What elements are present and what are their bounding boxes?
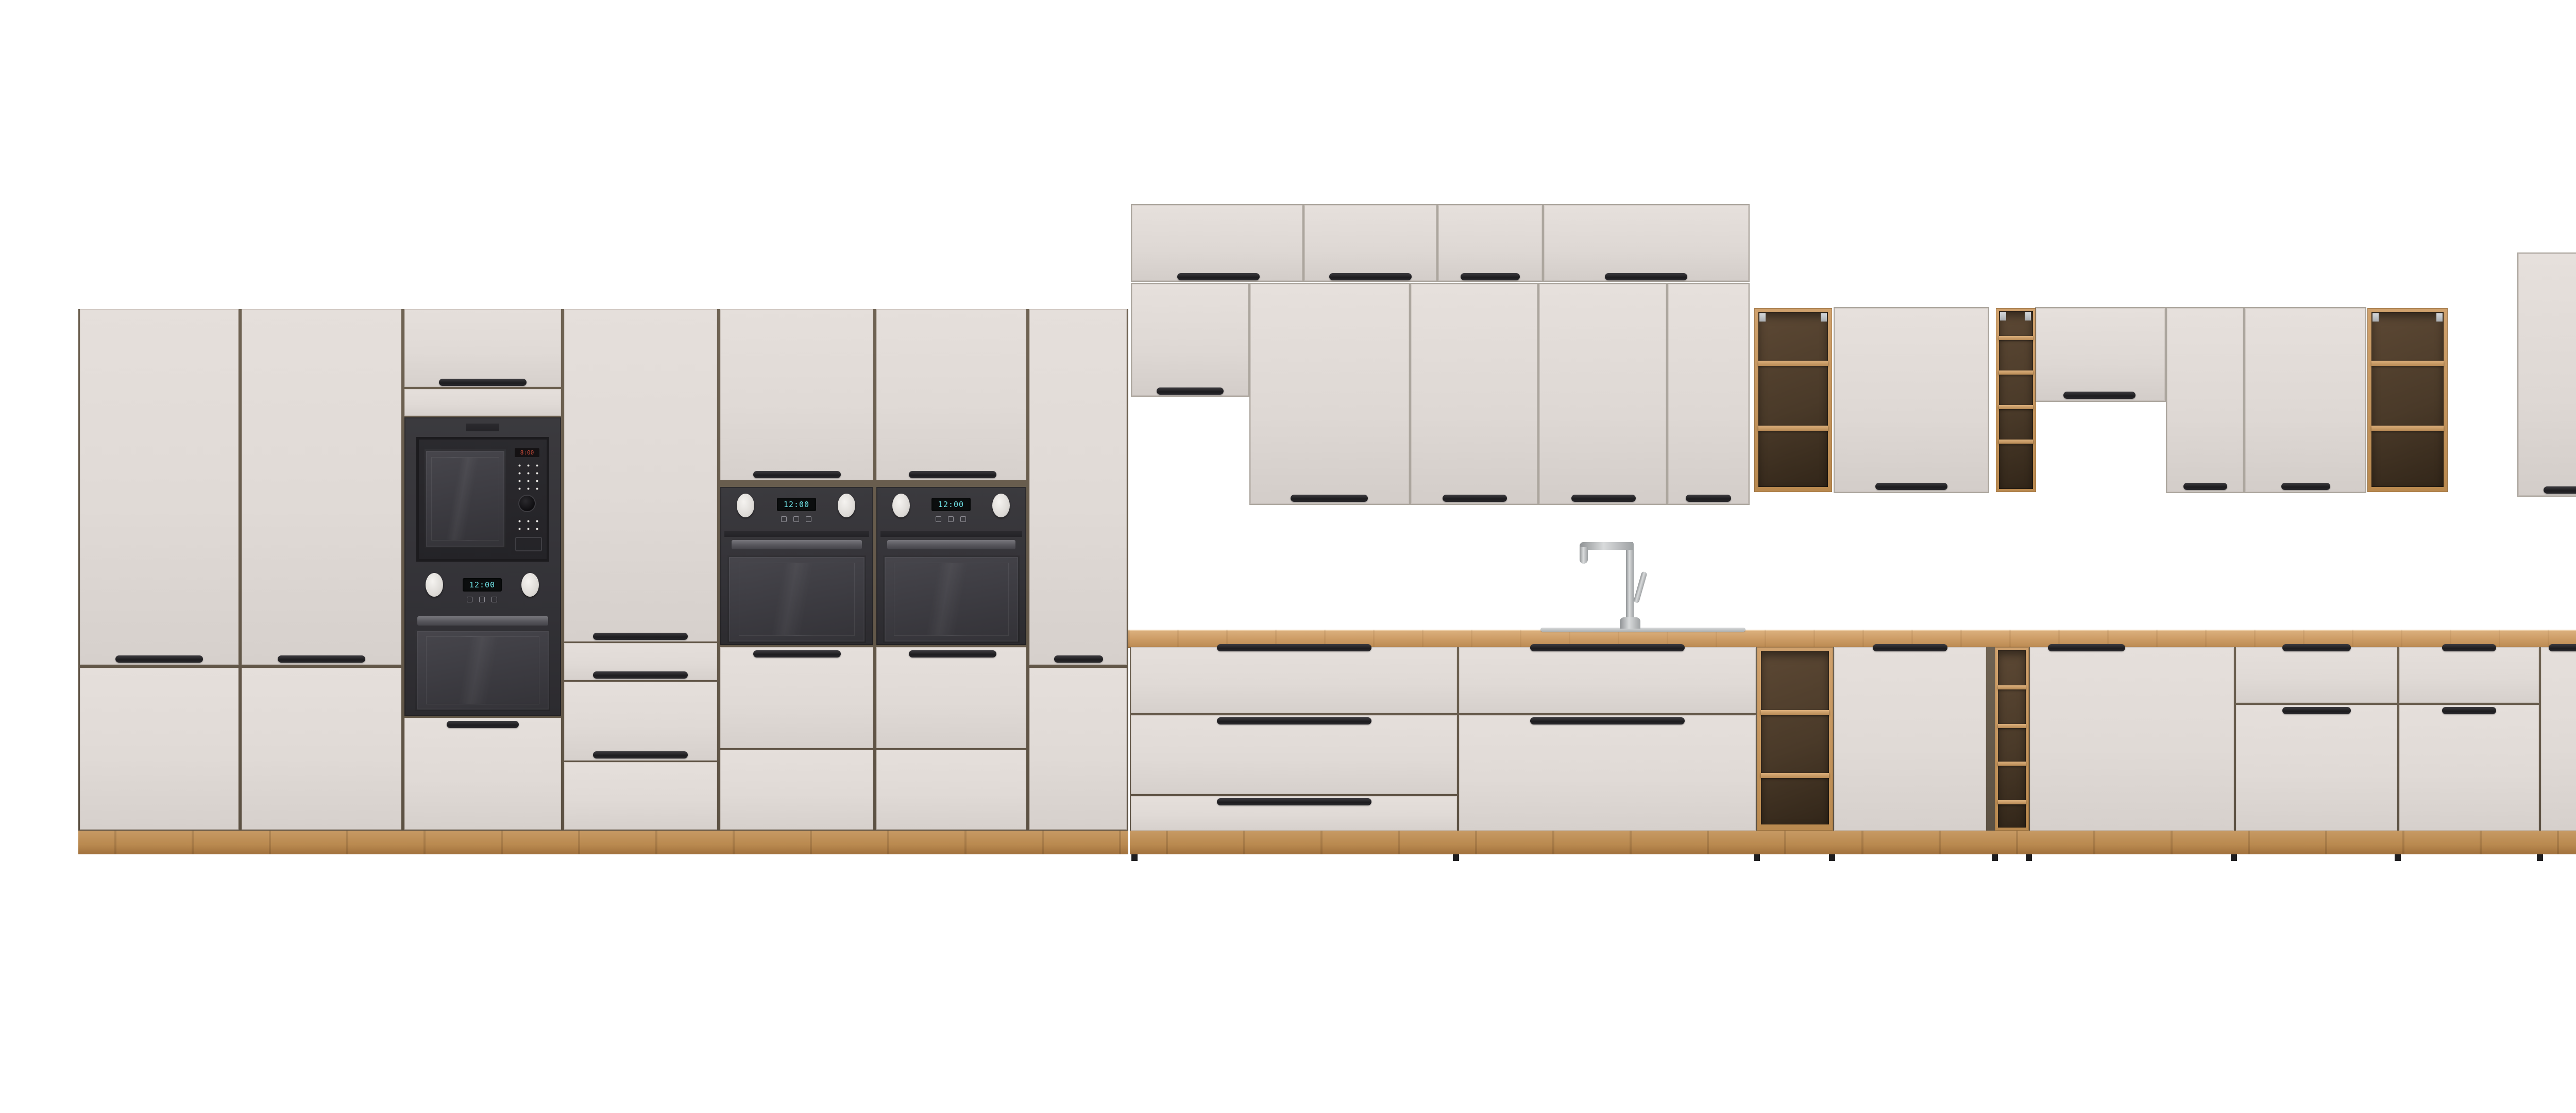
wall-bracket [2025, 312, 2031, 321]
faucet-base [1620, 617, 1640, 629]
cabinet-foot [1992, 854, 1998, 861]
microwave-buttons [515, 462, 540, 492]
internal-drawer-front [564, 762, 717, 830]
wall-cabinet-tall-door [2518, 254, 2576, 496]
oven-door-glass [883, 555, 1020, 643]
oven-touch-button [936, 516, 941, 522]
oven-knob [992, 494, 1010, 517]
top-box-door [1132, 205, 1302, 281]
wall-bracket [1821, 313, 1827, 322]
oven-display: 12:00 [463, 578, 502, 592]
wall-cabinet-short-door [2036, 308, 2165, 401]
base-cabinet-door [1834, 647, 1986, 831]
door-handle [115, 655, 203, 663]
drawer-handle [2442, 644, 2496, 651]
wall-bracket [2372, 313, 2379, 322]
wall-cabinet-tall-door [1835, 308, 1988, 492]
tall-cabinet-lower-door [80, 668, 239, 830]
tall-run-plinth [78, 831, 1128, 854]
shelf [2371, 426, 2444, 431]
microwave-window [425, 449, 506, 548]
drawer-handle [593, 671, 688, 679]
shelf [1761, 710, 1829, 715]
wall-cabinet-tall-door [1250, 284, 1409, 504]
oven-touch-button [793, 516, 799, 522]
shelf [1761, 773, 1829, 778]
shelf [1999, 370, 2033, 375]
cabinet-foot [1829, 854, 1835, 861]
drawer-handle [2282, 644, 2351, 651]
tower-filler-front [404, 389, 561, 416]
faucet-body [1626, 542, 1634, 629]
cabinet-foot [2537, 854, 2543, 861]
base-cabinet-door [2399, 705, 2539, 831]
tall-cabinet-door [80, 309, 239, 665]
door-handle [1054, 655, 1103, 663]
oven-recess [880, 531, 1022, 537]
oven-housing-drawer [876, 647, 1026, 748]
oven-door-handle [417, 616, 548, 626]
door-handle [2048, 644, 2125, 651]
wall-cabinet-tall-door [1539, 284, 1666, 504]
base-cabinet-door [2236, 705, 2397, 831]
tower-top-door [404, 309, 561, 387]
door-handle [1461, 273, 1520, 280]
oven-knob [838, 494, 855, 517]
tall-cabinet-lower-door [1029, 668, 1127, 830]
microwave-vent [466, 424, 499, 431]
oven-knob [521, 573, 539, 597]
cabinet-foot [1754, 854, 1760, 861]
shelf-cavity [1761, 651, 1829, 824]
top-box-door [1544, 205, 1749, 281]
door-handle [2281, 483, 2330, 490]
base-drawer-front [2399, 647, 2539, 703]
microwave-dial [519, 496, 535, 511]
door-handle [1443, 495, 1507, 502]
sink-base-drawer [1459, 647, 1756, 713]
sink-rim [1540, 628, 1745, 632]
door-handle [753, 471, 841, 478]
wall-bracket [2000, 312, 2006, 321]
door-handle [1686, 495, 1731, 502]
shelf-cavity [1758, 312, 1828, 487]
oven-touch-button [467, 597, 472, 602]
door-handle [1291, 495, 1368, 502]
oven-knob [892, 494, 910, 517]
shelf [1758, 361, 1828, 366]
internal-drawer-front [564, 682, 717, 761]
wall-cabinet-door [1132, 284, 1248, 396]
drawer-handle [1217, 798, 1371, 805]
door-handle [1329, 273, 1412, 280]
tall-cabinet-door [242, 309, 401, 665]
cabinet-foot [2395, 854, 2401, 861]
door-handle [278, 655, 365, 663]
wall-cabinet-tall-door [1668, 284, 1749, 504]
door-handle [2442, 707, 2496, 714]
drawer-handle [1217, 644, 1371, 651]
oven-door-handle [732, 540, 862, 549]
shelf [1998, 800, 2026, 804]
door-handle [1605, 273, 1687, 280]
door-handle [1571, 495, 1636, 502]
base-drawer-front [1131, 647, 1457, 713]
oven-knob [426, 573, 443, 597]
cabinet-foot [2231, 854, 2237, 861]
base-plinth [1130, 831, 2576, 854]
door-handle [2063, 392, 2136, 399]
oven-housing-drawer [720, 750, 873, 830]
shelf [1998, 762, 2026, 766]
wall-cabinet-tall-door [2245, 308, 2365, 492]
wall-cabinet-tall-door [2167, 308, 2243, 492]
shelf [1998, 724, 2026, 728]
door-handle [1157, 387, 1224, 395]
oven-touch-button [960, 516, 966, 522]
oven-display: 12:00 [931, 498, 971, 511]
wall-cabinet-tall-door [1411, 284, 1537, 504]
cabinet-foot [1131, 854, 1138, 861]
door-handle [1875, 483, 1947, 490]
shelf [1998, 685, 2026, 689]
oven-recess [724, 531, 869, 537]
drawer-handle [753, 650, 841, 657]
oven-display: 12:00 [777, 498, 816, 511]
base-drawer-front [1131, 715, 1457, 794]
cabinet-foot [1453, 854, 1459, 861]
door-handle [909, 471, 996, 478]
top-box-door [1438, 205, 1542, 281]
oven-housing-top-door [720, 309, 873, 480]
door-handle [1177, 273, 1260, 280]
top-box-door [1304, 205, 1436, 281]
tall-cabinet-door [1029, 309, 1127, 665]
shelf [1999, 405, 2033, 409]
oven-housing-top-door [876, 309, 1026, 480]
door-handle [1873, 644, 1947, 651]
shelf [1758, 426, 1828, 431]
shelf [1999, 440, 2033, 444]
shelf [1999, 336, 2033, 340]
door-handle [2544, 486, 2576, 494]
base-drawer-front [2236, 647, 2397, 703]
sink-base-door [1459, 715, 1756, 831]
drawer-handle [909, 650, 996, 657]
faucet-spout [1580, 547, 1588, 564]
door-handle [439, 379, 527, 386]
oven-touch-button [479, 597, 485, 602]
tall-cabinet-lower-door [242, 668, 401, 830]
door-handle [2549, 644, 2576, 651]
shelf [2371, 361, 2444, 366]
oven-touch-button [492, 597, 497, 602]
tall-cabinet-door [564, 309, 717, 642]
wall-bracket [2436, 313, 2443, 322]
oven-knob [737, 494, 754, 517]
microwave-door-button [515, 537, 542, 551]
microwave-menu-rows [515, 517, 540, 531]
oven-housing-drawer [720, 647, 873, 748]
door-handle [593, 633, 688, 640]
oven-door-handle [887, 540, 1015, 549]
oven-door-glass [727, 555, 866, 643]
drawer-handle [1217, 717, 1371, 724]
drawer-handle [1530, 644, 1685, 651]
cabinet-foot [2026, 854, 2032, 861]
drawer-handle [593, 751, 688, 758]
door-handle [2282, 707, 2351, 714]
drawer-handle [447, 721, 519, 728]
microwave-display: 8:00 [515, 448, 539, 457]
door-handle [1530, 717, 1685, 724]
shelf-cavity [2371, 312, 2444, 487]
faucet-lever [1633, 571, 1648, 603]
base-cabinet-door [2030, 647, 2234, 831]
oven-touch-button [948, 516, 954, 522]
oven-door-glass [415, 630, 550, 711]
kitchen-render: 8:00 12:00 12:00 12:00 [0, 0, 2576, 1113]
tower-bottom-drawer [404, 718, 561, 830]
oven-touch-button [781, 516, 787, 522]
oven-touch-button [806, 516, 811, 522]
oven-housing-drawer [876, 750, 1026, 830]
base-narrow-door [2541, 647, 2576, 831]
wall-bracket [1759, 313, 1766, 322]
door-handle [2183, 483, 2227, 490]
